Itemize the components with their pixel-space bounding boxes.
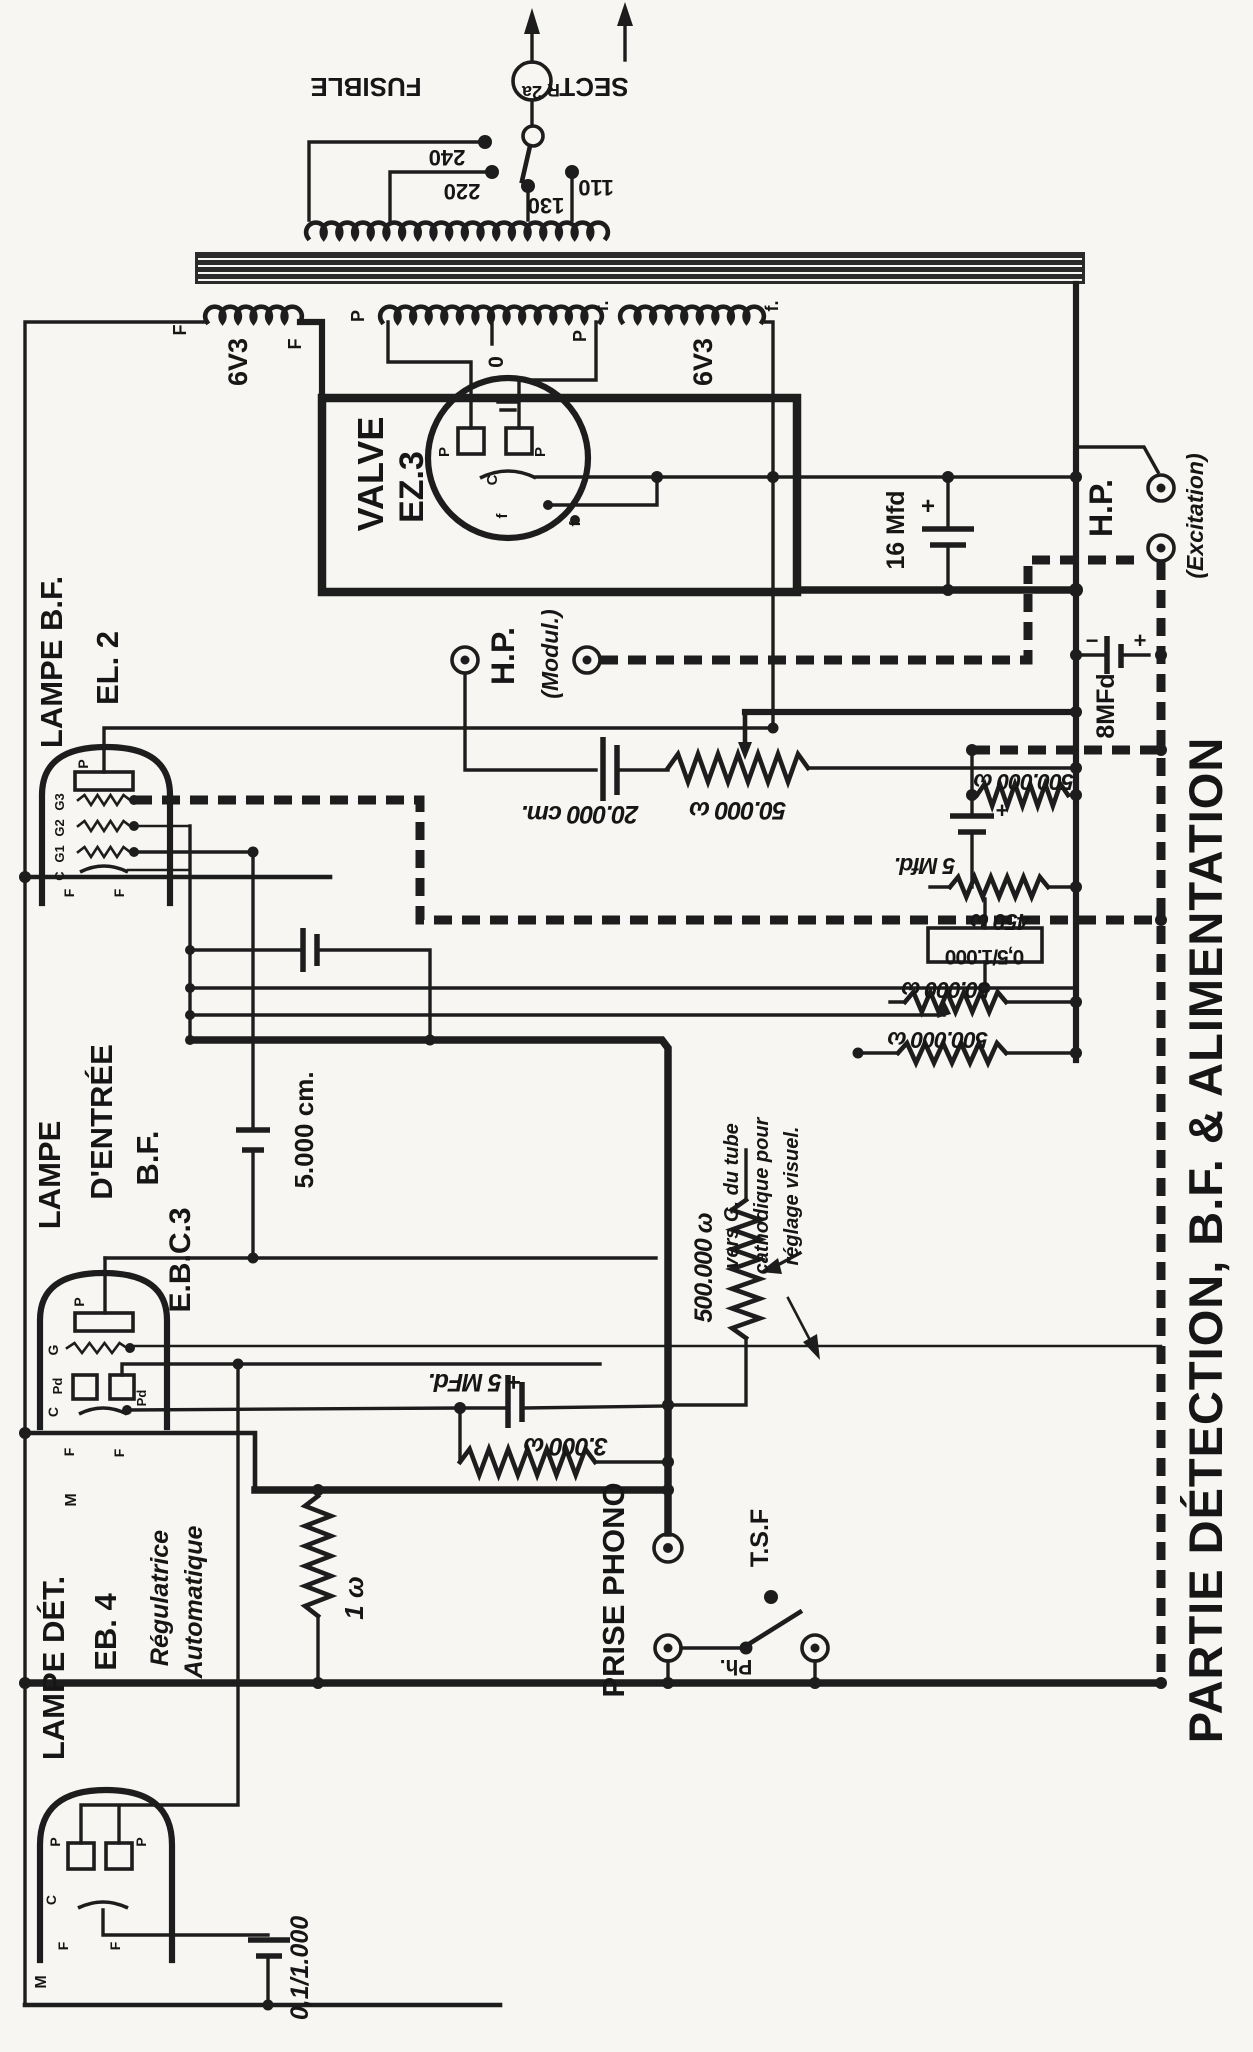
label-crt1: vers G. du tube xyxy=(721,1123,743,1269)
label-tap130: 130 xyxy=(528,193,565,218)
ebc3-cathode-icon xyxy=(79,1408,127,1414)
cap-01-plates xyxy=(248,1940,290,1956)
label-hp-modul: H.P. xyxy=(485,627,521,685)
label-eb4-m: M xyxy=(33,1975,50,1988)
wire xyxy=(300,322,322,398)
label-el2-g1: G1 xyxy=(52,845,67,862)
terminal-tsf-jack xyxy=(802,1635,828,1661)
label-c16-plus: + xyxy=(921,493,935,520)
wire xyxy=(465,674,596,770)
label-r500a: 500.000 ω xyxy=(973,769,1074,795)
label-eb4-p1: P xyxy=(47,1837,63,1846)
primary-winding-icon xyxy=(306,223,608,238)
label-c16: 16 Mfd xyxy=(882,490,910,569)
tsf-contact xyxy=(764,1590,778,1604)
el2-plate-icon xyxy=(75,772,133,790)
label-tap240: 240 xyxy=(429,145,466,170)
label-valve-type: EZ.3 xyxy=(393,451,431,523)
label-tsf: T.S.F xyxy=(746,1509,774,1567)
el2-g2-icon xyxy=(78,821,130,831)
label-fusible: FUSIBLE xyxy=(310,72,421,102)
label-eb4-l1: LAMPE DÉT. xyxy=(36,1576,71,1760)
ebc3-grid-icon xyxy=(67,1343,127,1353)
label-c8-minus: − xyxy=(1086,628,1099,653)
label-c01: 0,1/1.000 xyxy=(286,1916,314,2020)
label-bias-res: 3.000 ω xyxy=(523,1432,608,1460)
label-sect: SECTᴿ xyxy=(547,72,628,102)
label-bias-cap: + 5 MFd. xyxy=(429,1368,522,1396)
res-450-icon xyxy=(950,877,1048,897)
label-ebc3-g: G xyxy=(45,1344,61,1355)
label-r450: 450 ω xyxy=(970,909,1031,935)
label-r50b: 50.000 ω xyxy=(901,977,990,1003)
label-prise-phono: PRISE PHONO xyxy=(596,1482,631,1697)
mains-arrow-icon xyxy=(524,8,540,34)
ebc3-plate-icon xyxy=(75,1313,133,1331)
wire xyxy=(460,1406,668,1408)
ez3-anode1-icon xyxy=(458,428,484,454)
label-heater-6v3: 6V3 xyxy=(223,338,253,386)
label-rect-f-left: f. xyxy=(592,301,612,312)
excitation-dashed-feed xyxy=(600,560,1144,660)
el2-g3-icon xyxy=(78,795,130,805)
cap-5mfd2-plates xyxy=(950,816,994,832)
label-r500c: 500.000 ω xyxy=(690,1212,718,1322)
label-c5mfd: 5 Mfd. xyxy=(895,853,955,879)
r1-network xyxy=(305,1490,331,1683)
terminal-ph-jack xyxy=(655,1635,681,1661)
label-el2-f1: F xyxy=(61,888,77,897)
label-hp-modul-sub: (Modul.) xyxy=(537,609,563,698)
label-fuse-rating: 2a xyxy=(521,82,542,102)
label-ht-p-right: P xyxy=(570,330,590,342)
label-el2-type: EL. 2 xyxy=(90,631,125,705)
filter-16mfd xyxy=(797,284,1076,1060)
terminal-hp-exc-1 xyxy=(1148,475,1174,501)
el2-cathode-icon xyxy=(80,866,128,872)
label-rect-f-right: f. xyxy=(762,301,782,312)
label-ebc3-pd2: Pd xyxy=(134,1390,149,1407)
eb4-diode1-icon xyxy=(68,1843,94,1869)
label-eb4-f2: F xyxy=(107,1941,123,1950)
terminal-phono xyxy=(654,1534,682,1562)
label-eb4-p2: P xyxy=(133,1837,149,1846)
label-el2-f2: F xyxy=(111,888,127,897)
ebc3-diode2-icon xyxy=(110,1375,134,1399)
wire xyxy=(548,477,657,505)
wire xyxy=(388,322,471,428)
label-c20000: 20.000 cm. xyxy=(522,800,640,828)
label-valve: VALVE xyxy=(350,417,391,532)
label-ht-zero: 0 xyxy=(485,356,508,368)
label-el2-name: LAMPE B.F. xyxy=(34,576,69,748)
label-tap110: 110 xyxy=(578,175,614,200)
label-r50000-top: 50.000 ω xyxy=(689,796,786,824)
label-el2-g3: G3 xyxy=(52,793,67,810)
wire xyxy=(103,1910,268,1935)
label-heater-f-right: F xyxy=(285,339,305,350)
cap-20000-plates xyxy=(603,737,617,801)
labels-layer: SECTᴿ FUSIBLE 2a 240 220 130 110 F 6V3 F… xyxy=(32,72,1232,2020)
label-ebc3-l1: LAMPE xyxy=(32,1121,67,1230)
label-crt3: réglage visuel. xyxy=(781,1127,803,1266)
diode-wire xyxy=(122,1364,600,1375)
res-1ohm-icon xyxy=(305,1496,331,1616)
label-ebc3-pd1: Pd xyxy=(50,1378,65,1395)
ht-winding-icon xyxy=(380,307,602,322)
label-r1: 1 ω xyxy=(339,1576,369,1619)
label-c5-plus: + xyxy=(996,798,1009,823)
label-rect-6v3: 6V3 xyxy=(688,338,718,386)
rectifier-heater-winding-icon xyxy=(620,307,764,322)
ez3-anode2-icon xyxy=(506,428,532,454)
label-ebc3-l2: D'ENTRÉE xyxy=(84,1044,119,1200)
label-ht-p-left: P xyxy=(348,310,368,322)
eb4-cathode-icon xyxy=(78,1902,128,1908)
wire xyxy=(190,950,430,1040)
label-ph: Ph. xyxy=(720,1655,753,1678)
label-ez-c: C xyxy=(484,474,501,485)
selector-arm xyxy=(522,146,530,181)
page-title: PARTIE DÉTECTION, B.F. & ALIMENTATION xyxy=(1179,737,1232,1744)
eb4-diode2-icon xyxy=(106,1843,132,1869)
cap-coupling-plates xyxy=(236,1130,270,1150)
label-hp-exc: H.P. xyxy=(1083,479,1119,537)
terminal-hp-modul-1 xyxy=(452,647,478,673)
wire xyxy=(762,322,773,728)
label-hp-exc-sub: (Excitation) xyxy=(1182,453,1208,578)
cap-5000-plates xyxy=(303,928,317,972)
label-ez-p2: P xyxy=(532,447,549,457)
label-eb4-type: EB. 4 xyxy=(88,1592,123,1670)
selector-pivot-icon xyxy=(523,126,543,146)
label-eb4-c: C xyxy=(43,1895,59,1905)
label-r05: 0,5/1.000 xyxy=(945,945,1024,968)
cap-8mfd-plates xyxy=(1107,636,1121,674)
wire xyxy=(1076,447,1158,472)
label-ez-p1: P xyxy=(436,447,453,457)
power-transformer xyxy=(25,223,1085,2005)
pot-50000-icon xyxy=(668,754,808,782)
label-ebc3-m: M xyxy=(63,1493,80,1506)
label-ebc3-type: E.B.C.3 xyxy=(164,1207,197,1312)
schematic-canvas: SECTᴿ FUSIBLE 2a 240 220 130 110 F 6V3 F… xyxy=(0,0,1253,2052)
label-ebc3-c: C xyxy=(45,1407,61,1417)
ebc3-diode1-icon xyxy=(73,1375,97,1399)
label-c5000: 5.000 cm. xyxy=(289,1071,319,1188)
label-el2-c: C xyxy=(52,871,67,881)
bus-wire xyxy=(190,1010,944,1015)
label-reg2: Automatique xyxy=(180,1526,208,1680)
wire xyxy=(127,1408,460,1410)
label-c8-plus: + xyxy=(1134,628,1147,653)
label-ez-f1: f xyxy=(494,513,511,519)
terminal-hp-modul-2 xyxy=(574,647,600,673)
label-ebc3-p: P xyxy=(71,1297,87,1306)
label-heater-f-left: F xyxy=(170,325,190,336)
label-crt2: cathodique pour xyxy=(751,1116,773,1274)
label-el2-g2: G2 xyxy=(52,819,67,836)
label-tap220: 220 xyxy=(444,179,481,204)
el2-g1-icon xyxy=(78,847,130,857)
sect-arrow-icon xyxy=(617,2,633,26)
heater-wire xyxy=(25,1433,255,1490)
heater-winding-icon xyxy=(205,307,302,322)
label-ebc3-f2: F xyxy=(111,1448,127,1457)
label-ebc3-f1: F xyxy=(61,1447,77,1456)
label-c8: 8MFd xyxy=(1092,673,1120,738)
label-el2-p: P xyxy=(75,759,91,768)
label-ebc3-l3: B.F. xyxy=(130,1130,165,1185)
schematic-page: SECTᴿ FUSIBLE 2a 240 220 130 110 F 6V3 F… xyxy=(0,0,1253,2052)
switch-arm xyxy=(749,1612,800,1644)
terminal-hp-exc-2 xyxy=(1148,535,1174,561)
ez3-getter xyxy=(498,402,518,410)
crt-arrow-line xyxy=(788,1298,812,1344)
label-r500b: 500.000 ω xyxy=(887,1027,988,1053)
label-reg1: Régulatrice xyxy=(146,1530,174,1666)
label-eb4-f1: F xyxy=(55,1941,71,1950)
